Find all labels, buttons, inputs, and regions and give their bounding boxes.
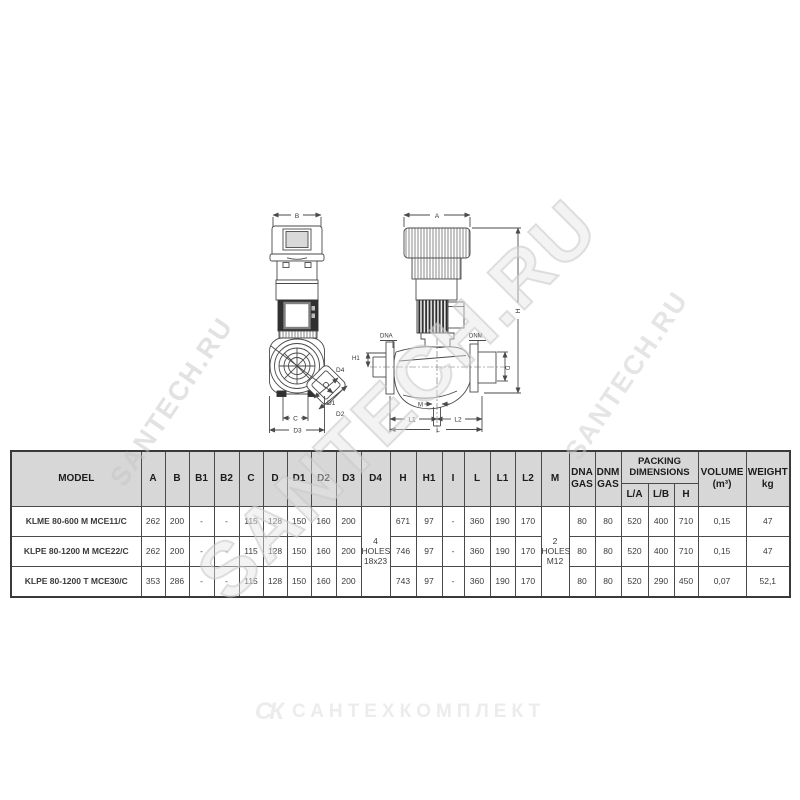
header-d: D: [263, 451, 287, 506]
header-l2: L2: [515, 451, 541, 506]
cell-model: KLPE 80-1200 T MCE30/C: [11, 566, 141, 597]
header-c: C: [239, 451, 263, 506]
cell-l1: 190: [490, 506, 515, 536]
cell-b2: -: [214, 566, 239, 597]
cell-d4-line1: 4: [362, 536, 390, 546]
specification-table-section: MODEL A B B1 B2 C D D1 D2 D3 D4 H H1 I L…: [10, 450, 791, 598]
dim-label-d4: D4: [336, 367, 345, 374]
header-l: L: [464, 451, 490, 506]
cell-l1: 190: [490, 566, 515, 597]
header-packing-lb: L/B: [648, 483, 674, 506]
cell-h1: 97: [416, 506, 442, 536]
cell-weight: 47: [746, 536, 790, 566]
cell-d2: 160: [311, 506, 336, 536]
header-dnm-line2: GAS: [596, 479, 621, 491]
header-volume-line2: (m³): [699, 479, 746, 491]
pump-technical-drawings: B: [250, 205, 550, 450]
cell-h: 671: [390, 506, 416, 536]
cell-m-shared: 2 HOLES M12: [541, 506, 569, 597]
header-d2: D2: [311, 451, 336, 506]
footer-logo: СК САНТЕХКОМПЛЕКТ: [255, 698, 545, 726]
cell-m-line1: 2: [542, 536, 569, 546]
cell-la: 520: [621, 566, 648, 597]
header-b2: B2: [214, 451, 239, 506]
header-l1: L1: [490, 451, 515, 506]
cell-m-line3: M12: [542, 556, 569, 566]
dim-label-l2: L2: [454, 417, 462, 424]
cell-b2: -: [214, 506, 239, 536]
header-model: MODEL: [11, 451, 141, 506]
header-volume: VOLUME (m³): [698, 451, 746, 506]
cell-dnm: 80: [595, 506, 621, 536]
cell-dnm: 80: [595, 566, 621, 597]
cell-l2: 170: [515, 506, 541, 536]
header-packing-dimensions: PACKING DIMENSIONS: [621, 451, 698, 483]
header-m: M: [541, 451, 569, 506]
dim-label-l1: L1: [408, 417, 416, 424]
cell-la: 520: [621, 506, 648, 536]
header-d1: D1: [287, 451, 311, 506]
dim-label-a: A: [435, 213, 440, 220]
datasheet-page: B: [0, 0, 800, 800]
cell-d1: 150: [287, 536, 311, 566]
cell-d3: 200: [336, 506, 361, 536]
cell-lb: 400: [648, 506, 674, 536]
cell-m-line2: HOLES: [542, 546, 569, 556]
cell-d: 128: [263, 506, 287, 536]
cell-a: 353: [141, 566, 165, 597]
front-view-drawing: B: [270, 213, 348, 435]
cell-lb: 400: [648, 536, 674, 566]
cell-la: 520: [621, 536, 648, 566]
dim-label-h: H: [514, 309, 521, 314]
header-h: H: [390, 451, 416, 506]
cell-dnm: 80: [595, 536, 621, 566]
cell-volume: 0,15: [698, 506, 746, 536]
header-packing-la: L/A: [621, 483, 648, 506]
dim-label-d: D: [504, 366, 510, 371]
cell-dna: 80: [569, 536, 595, 566]
cell-l: 360: [464, 506, 490, 536]
cell-i: -: [442, 506, 464, 536]
cell-b1: -: [189, 566, 214, 597]
cell-d: 128: [263, 536, 287, 566]
cell-l: 360: [464, 536, 490, 566]
cell-h: 743: [390, 566, 416, 597]
cell-i: -: [442, 566, 464, 597]
dim-label-d2: D2: [336, 411, 345, 418]
side-view-drawing: A M: [352, 213, 521, 434]
cell-d3: 200: [336, 566, 361, 597]
cell-dna: 80: [569, 506, 595, 536]
cell-ph: 450: [674, 566, 698, 597]
cell-d4-shared: 4 HOLES 18x23: [361, 506, 390, 597]
dim-label-m: M: [418, 403, 423, 409]
header-dnm-line1: DNM: [596, 467, 621, 479]
table-row: KLME 80-600 M MCE11/C 262 200 - - 115 12…: [11, 506, 790, 536]
cell-d4-line2: HOLES: [362, 546, 390, 556]
header-dna-gas: DNA GAS: [569, 451, 595, 506]
cell-l2: 170: [515, 536, 541, 566]
header-d4: D4: [361, 451, 390, 506]
cell-ph: 710: [674, 536, 698, 566]
cell-h1: 97: [416, 536, 442, 566]
cell-a: 262: [141, 506, 165, 536]
dim-label-dna: DNA: [380, 334, 393, 340]
cell-l2: 170: [515, 566, 541, 597]
table-row: KLPE 80-1200 T MCE30/C 353 286 - - 115 1…: [11, 566, 790, 597]
specification-table: MODEL A B B1 B2 C D D1 D2 D3 D4 H H1 I L…: [10, 450, 791, 598]
footer-logo-icon: СК: [255, 698, 281, 726]
cell-d: 128: [263, 566, 287, 597]
dim-label-l: L: [436, 427, 440, 434]
cell-c: 115: [239, 536, 263, 566]
cell-model: KLME 80-600 M MCE11/C: [11, 506, 141, 536]
cell-b2: -: [214, 536, 239, 566]
cell-model: KLPE 80-1200 M MCE22/C: [11, 536, 141, 566]
header-packing-h: H: [674, 483, 698, 506]
header-dna-line1: DNA: [570, 467, 595, 479]
dim-label-b: B: [295, 213, 299, 220]
cell-d2: 160: [311, 536, 336, 566]
dim-label-h1: H1: [352, 356, 360, 362]
cell-volume: 0,07: [698, 566, 746, 597]
cell-b: 200: [165, 536, 189, 566]
header-weight-line2: kg: [747, 479, 790, 491]
header-weight: WEIGHT kg: [746, 451, 790, 506]
header-b1: B1: [189, 451, 214, 506]
cell-l: 360: [464, 566, 490, 597]
cell-volume: 0,15: [698, 536, 746, 566]
cell-c: 115: [239, 506, 263, 536]
cell-l1: 190: [490, 536, 515, 566]
dim-label-dnm: DNM: [469, 334, 483, 340]
header-volume-line1: VOLUME: [699, 467, 746, 479]
dim-label-c: C: [293, 416, 298, 423]
cell-ph: 710: [674, 506, 698, 536]
cell-lb: 290: [648, 566, 674, 597]
header-packing-line2: DIMENSIONS: [622, 467, 698, 478]
cell-b: 286: [165, 566, 189, 597]
cell-weight: 47: [746, 506, 790, 536]
cell-d1: 150: [287, 566, 311, 597]
cell-h: 746: [390, 536, 416, 566]
cell-b1: -: [189, 506, 214, 536]
header-packing-line1: PACKING: [622, 456, 698, 467]
header-a: A: [141, 451, 165, 506]
cell-b1: -: [189, 536, 214, 566]
cell-d2: 160: [311, 566, 336, 597]
cell-dna: 80: [569, 566, 595, 597]
cell-i: -: [442, 536, 464, 566]
header-dnm-gas: DNM GAS: [595, 451, 621, 506]
watermark-diagonal-right: SANTECH.RU: [559, 286, 695, 467]
cell-weight: 52,1: [746, 566, 790, 597]
header-weight-line1: WEIGHT: [747, 467, 790, 479]
header-h1: H1: [416, 451, 442, 506]
cell-b: 200: [165, 506, 189, 536]
header-d3: D3: [336, 451, 361, 506]
header-dna-line2: GAS: [570, 479, 595, 491]
cell-d1: 150: [287, 506, 311, 536]
table-row: KLPE 80-1200 M MCE22/C 262 200 - - 115 1…: [11, 536, 790, 566]
cell-d3: 200: [336, 536, 361, 566]
cell-h1: 97: [416, 566, 442, 597]
dim-label-d3: D3: [293, 428, 302, 435]
header-i: I: [442, 451, 464, 506]
header-b: B: [165, 451, 189, 506]
cell-c: 115: [239, 566, 263, 597]
cell-d4-line3: 18x23: [362, 556, 390, 566]
cell-a: 262: [141, 536, 165, 566]
footer-logo-text: САНТЕХКОМПЛЕКТ: [292, 701, 545, 723]
